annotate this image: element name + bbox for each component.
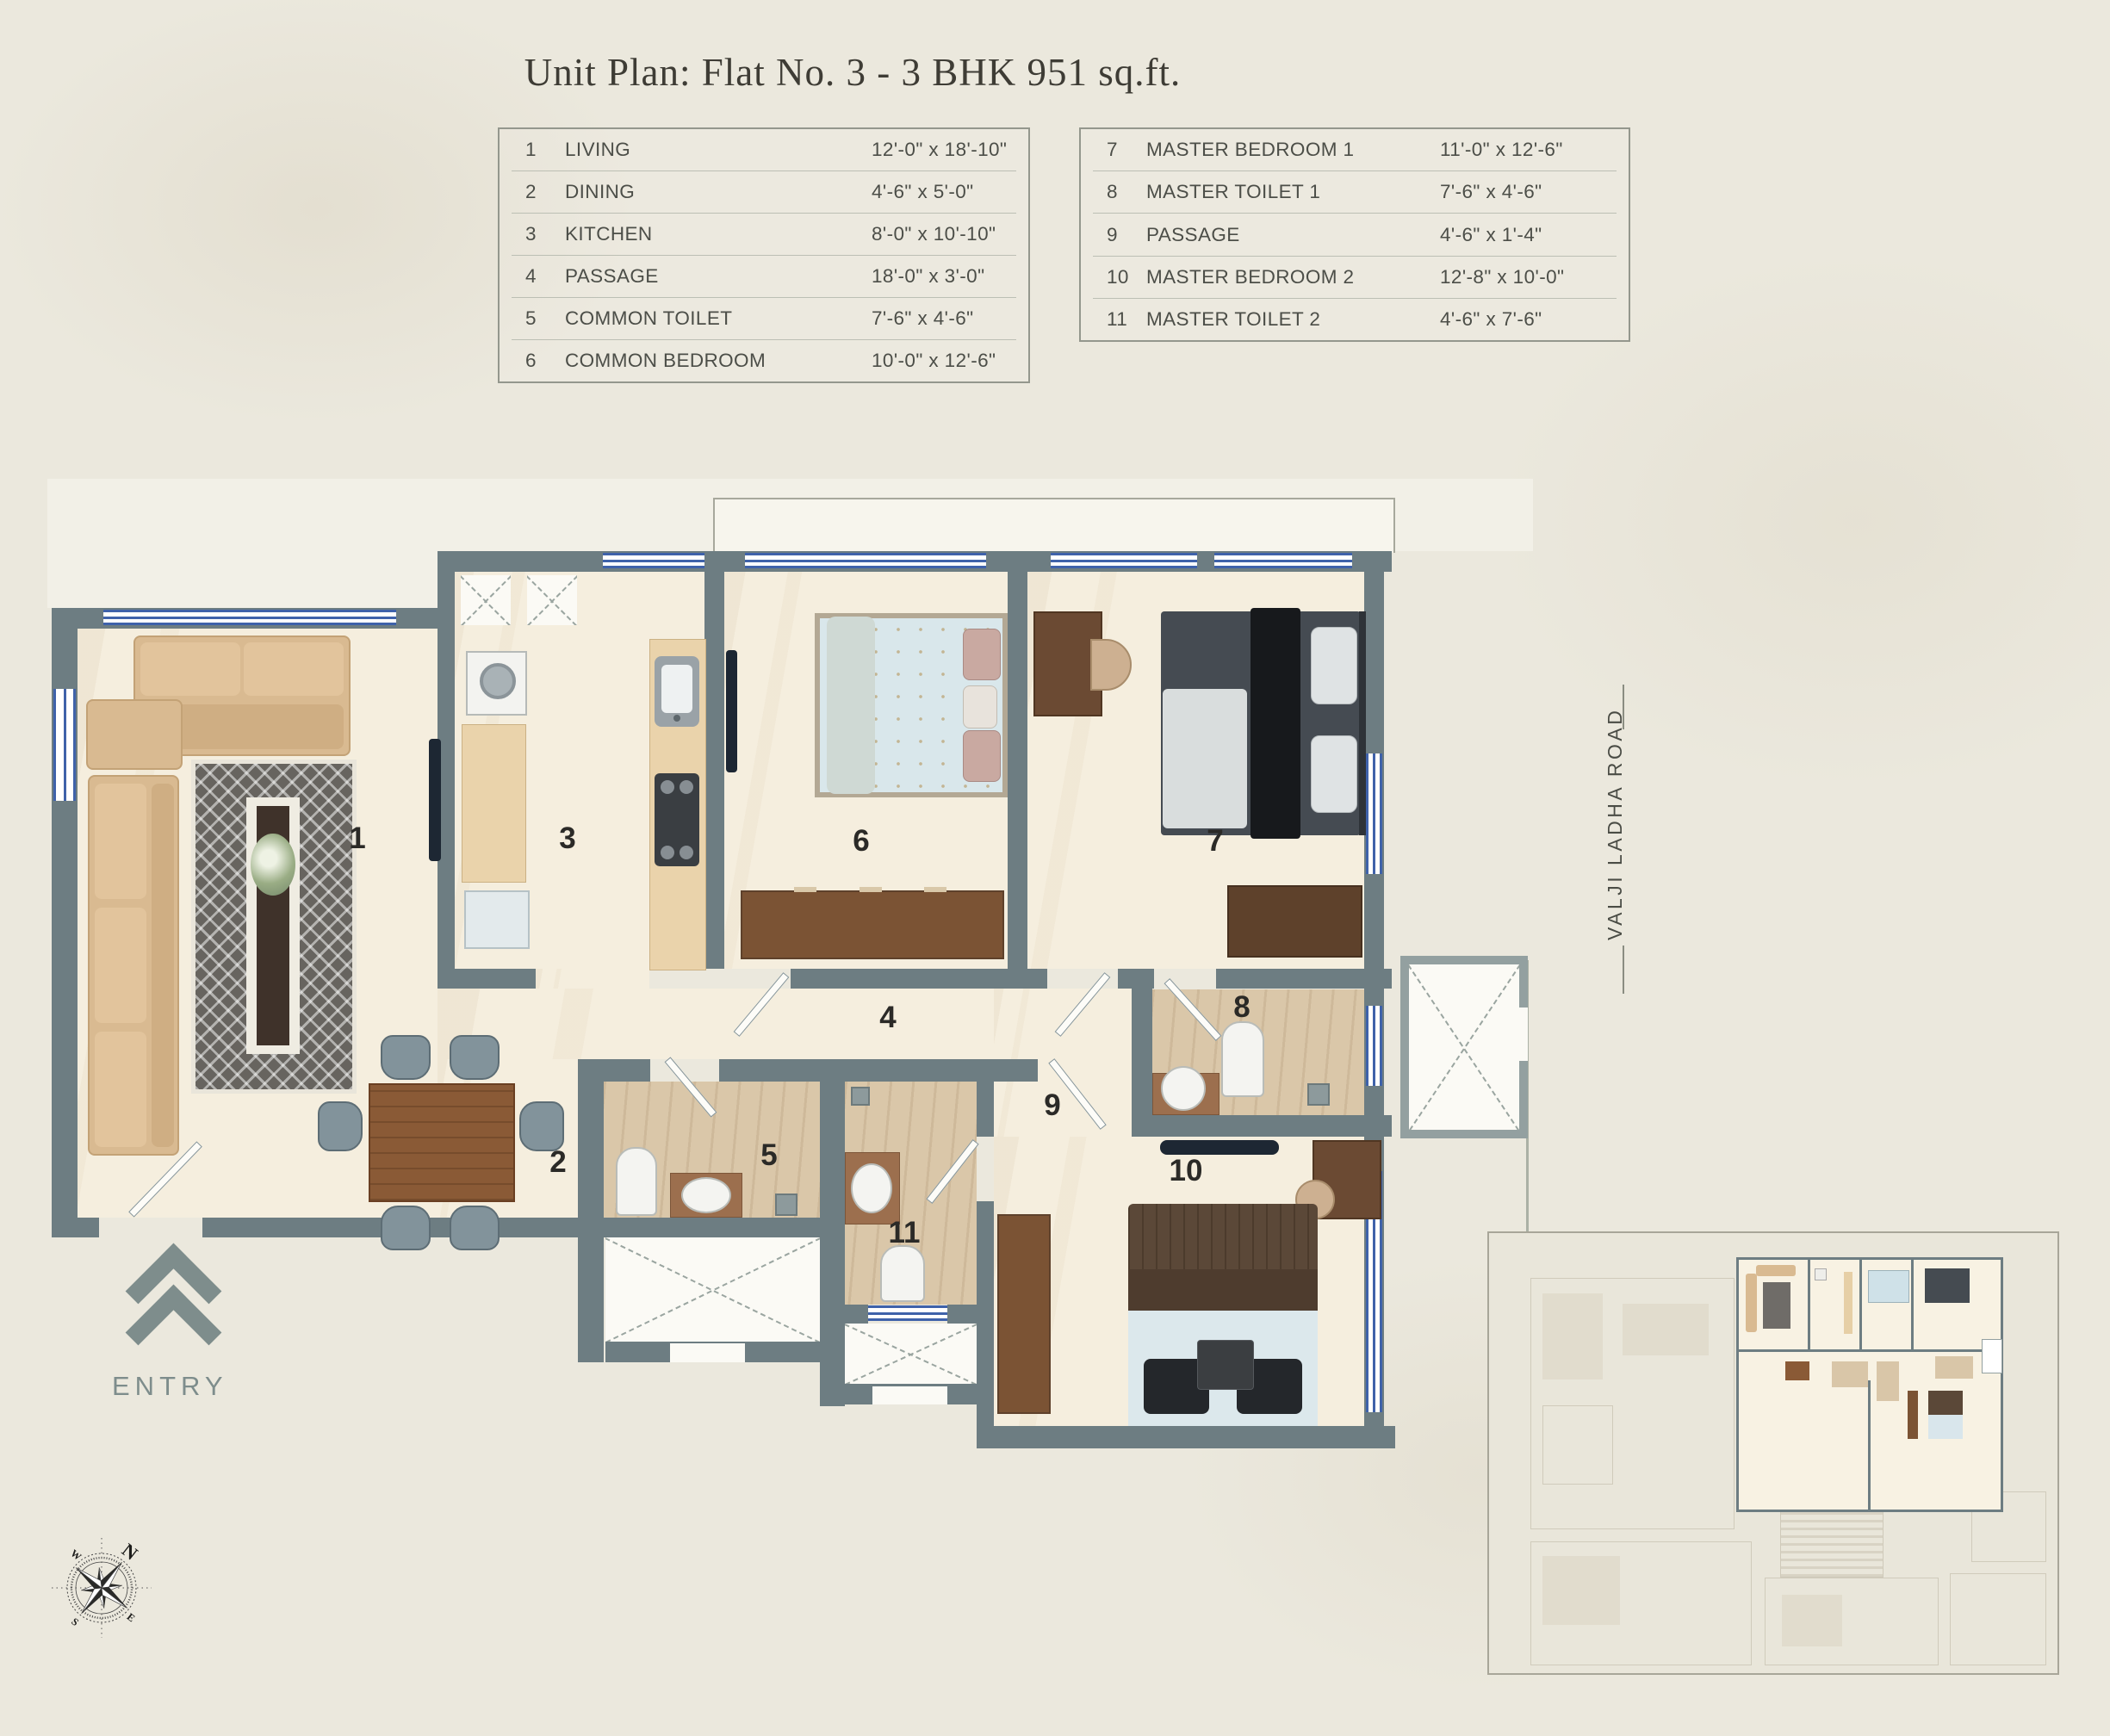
legend-row: 10MASTER BEDROOM 212'-8" x 10'-0" [1093,256,1617,298]
wall [52,1218,99,1237]
room-number: 5 [525,307,537,330]
wall [704,551,724,969]
room-label-toilet8: 8 [1233,990,1250,1025]
key-plan-highlighted-flat [1736,1257,2003,1512]
key-plan [1487,1231,2059,1675]
adjacent-area [47,542,442,608]
legend-table-left: 1LIVING12'-0" x 18'-10" 2DINING4'-6" x 5… [498,127,1030,383]
room-name: COMMON TOILET [565,307,732,330]
duct [461,575,511,625]
tv-living [429,739,441,861]
dining-chair [519,1101,564,1151]
legend-row: 5COMMON TOILET7'-6" x 4'-6" [512,297,1016,339]
room-number: 1 [525,139,537,161]
wc-toilet5 [616,1147,657,1216]
threshold [872,1386,947,1404]
balcony-door-gap [1519,1008,1528,1061]
wall [1216,969,1392,989]
ghost-room [1542,1405,1613,1485]
kitchen-counter [462,724,526,883]
room-dimensions: 4'-6" x 1'-4" [1440,224,1542,246]
room-dimensions: 4'-6" x 5'-0" [872,181,974,203]
room-dimensions: 12'-0" x 18'-10" [872,139,1007,161]
room-label-toilet5: 5 [760,1138,777,1173]
window [1366,753,1382,874]
road-label: VALJI LADHA ROAD [1604,734,1627,940]
wc-toilet11 [880,1245,925,1302]
wardrobe-bedroom7 [1227,885,1362,958]
legend-row: 6COMMON BEDROOM10'-0" x 12'-6" [512,339,1016,381]
room-dimensions: 12'-8" x 10'-0" [1440,266,1564,288]
wall [977,1059,994,1137]
page-title: Unit Plan: Flat No. 3 - 3 BHK 951 sq.ft. [0,50,1705,95]
bed-master2 [1128,1204,1318,1426]
wc-toilet8 [1221,1021,1264,1097]
ghost-room [1542,1556,1620,1625]
window [868,1305,947,1321]
compass-rose-icon: N W S E [50,1536,153,1640]
room-name: PASSAGE [565,265,659,288]
vanity-counter [670,1173,742,1218]
ghost-room [1542,1293,1603,1379]
floor-plan: 1 2 3 4 5 6 7 8 9 10 11 ENTRY [52,491,1528,1481]
washbasin-toilet8 [1161,1066,1206,1111]
legend-row: 9PASSAGE4'-6" x 1'-4" [1093,213,1617,255]
sofa-three-seater [88,775,179,1156]
room-label-passage9: 9 [1044,1088,1060,1123]
room-dimensions: 7'-6" x 4'-6" [872,307,974,330]
window [103,610,396,625]
dining-chair [318,1101,363,1151]
room-number: 9 [1107,224,1118,246]
room-dimensions: 4'-6" x 7'-6" [1440,308,1542,331]
room-name: MASTER TOILET 1 [1146,181,1320,203]
room-label-bedroom6: 6 [853,824,869,859]
room-label-living: 1 [349,821,365,856]
room-number: 8 [1107,181,1118,203]
fridge [464,890,530,949]
legend-row: 2DINING4'-6" x 5'-0" [512,170,1016,213]
ghost-room [1782,1595,1842,1646]
room-dimensions: 7'-6" x 4'-6" [1440,181,1542,203]
vanity-counter [845,1152,900,1224]
open-terrace-outline [713,498,1395,553]
legend-row: 4PASSAGE18'-0" x 3'-0" [512,255,1016,297]
ledge-duct [845,1324,977,1384]
wall [791,969,1047,989]
room-dimensions: 18'-0" x 3'-0" [872,265,984,288]
road-line [1623,945,1624,994]
entry-marker: ENTRY [103,1245,293,1469]
compass-e: E [125,1610,138,1624]
washing-machine [466,651,527,716]
legend-row: 8MASTER TOILET 17'-6" x 4'-6" [1093,170,1617,213]
wall [438,969,536,989]
room-number: 10 [1107,266,1129,288]
bed-master1 [1161,611,1361,835]
utility-balcony [1400,956,1528,1138]
room-number: 4 [525,265,537,288]
legend-row: 7MASTER BEDROOM 111'-0" x 12'-6" [1093,129,1617,170]
dining-chair [381,1206,431,1250]
room-number: 2 [525,181,537,203]
wall [977,1201,994,1426]
room-name: DINING [565,181,635,203]
room-label-kitchen: 3 [559,821,575,856]
room-number: 6 [525,350,537,372]
window [53,689,76,801]
tv-bedroom10 [1160,1140,1279,1155]
wall [1133,1115,1392,1137]
gas-stove [655,773,699,866]
room-label-dining: 2 [549,1145,566,1180]
legend-row: 1LIVING12'-0" x 18'-10" [512,129,1016,170]
room-number: 7 [1107,139,1118,161]
window [603,553,704,568]
ledge-duct [605,1237,820,1342]
tv-bedroom6 [726,650,737,772]
bed-common [815,613,1008,797]
room-label-passage4: 4 [879,1001,896,1035]
shower-toilet8 [1307,1083,1330,1106]
dining-chair [450,1035,500,1080]
room-label-bedroom7: 7 [1207,824,1223,859]
room-dimensions: 8'-0" x 10'-10" [872,223,996,245]
threshold [670,1343,745,1362]
room-dimensions: 11'-0" x 12'-6" [1440,139,1563,161]
room-name: COMMON BEDROOM [565,350,766,372]
wall [824,1305,868,1324]
wall [1008,572,1027,969]
wardrobe-bedroom6 [741,890,1004,959]
wall [202,1218,824,1237]
room-label-toilet11: 11 [889,1216,921,1250]
entry-label: ENTRY [112,1371,228,1402]
wall [947,1305,977,1324]
compass-s: S [69,1615,81,1628]
window [1051,553,1197,568]
wall [1132,969,1152,1137]
dining-chair [381,1035,431,1080]
duct [527,575,577,625]
window [1366,1006,1382,1086]
kitchen-opening [536,969,649,989]
dining-chair [450,1206,500,1250]
room-number: 3 [525,223,537,245]
room-dimensions: 10'-0" x 12'-6" [872,350,996,372]
legend-row: 3KITCHEN8'-0" x 10'-10" [512,213,1016,255]
wardrobe-bedroom10 [997,1214,1051,1414]
room-name: MASTER TOILET 2 [1146,308,1320,331]
shower-toilet5 [775,1193,797,1216]
legend-row: 11MASTER TOILET 24'-6" x 7'-6" [1093,298,1617,340]
ghost-room [1623,1304,1709,1355]
dining-table [369,1083,515,1202]
corner-ottoman [86,699,183,770]
legend-table-right: 7MASTER BEDROOM 111'-0" x 12'-6" 8MASTER… [1079,127,1630,342]
window [1214,553,1352,568]
room-name: LIVING [565,139,630,161]
room-name: KITCHEN [565,223,653,245]
ghost-flat [1950,1573,2046,1665]
shower-toilet11 [851,1087,870,1106]
room-name: MASTER BEDROOM 1 [1146,139,1354,161]
room-name: PASSAGE [1146,224,1240,246]
room-label-bedroom10: 10 [1170,1154,1203,1188]
kitchen-sink [655,656,699,727]
compass-n: N [118,1539,142,1565]
window [745,553,986,568]
wall [977,1426,1395,1448]
room-number: 11 [1107,308,1127,331]
room-name: MASTER BEDROOM 2 [1146,266,1354,288]
flower-vase [251,834,295,896]
wall [578,1059,604,1362]
